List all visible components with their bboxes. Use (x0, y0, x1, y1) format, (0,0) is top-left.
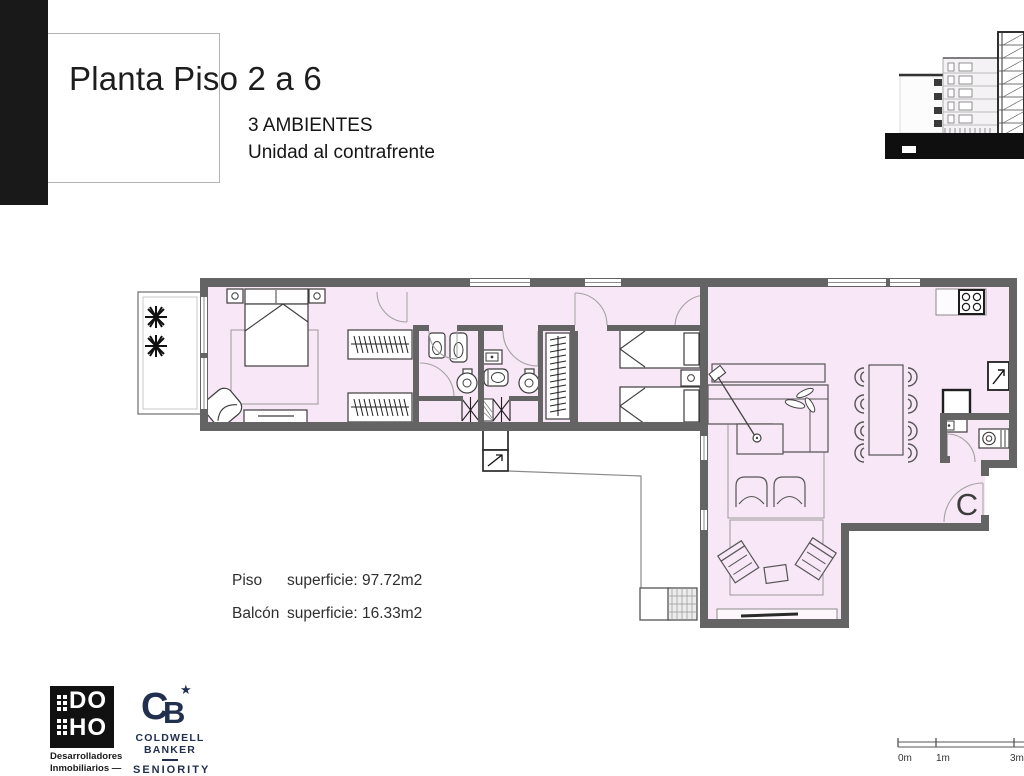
doho-logo: DO HO Desarrolladores Inmobiliarios — (50, 686, 122, 775)
washbasin-icon (457, 373, 477, 393)
doho-logo-mark: DO HO (50, 686, 114, 748)
scale-bar: 0m 1m 3m (893, 736, 1024, 768)
scale-0m: 0m (898, 753, 912, 764)
kitchen-shaft (943, 390, 970, 415)
electrical-panel (988, 362, 1009, 390)
balcon-value: superficie: 16.33m2 (287, 605, 422, 623)
doho-caption-1: Desarrolladores (50, 751, 122, 763)
stove-icon (959, 290, 984, 314)
washbasin-icon (519, 373, 539, 393)
side-table (764, 565, 788, 584)
cb-line-2: BANKER (133, 744, 207, 756)
star-icon: ★ (180, 682, 192, 698)
hall-closet (546, 333, 570, 419)
subtitle: 3 AMBIENTES Unidad al contrafrente (248, 112, 435, 166)
piso-value: superficie: 97.72m2 (287, 572, 422, 590)
floorplan-slide: { "header": { "title": "Planta Piso 2 a … (0, 0, 1024, 768)
cb-line-1: COLDWELL (133, 732, 207, 744)
subtitle-line-2: Unidad al contrafrente (248, 139, 435, 166)
building-section-elevation (880, 0, 1024, 168)
console-table (712, 364, 825, 382)
scale-3m: 3m (1010, 753, 1024, 764)
barrel-chair (774, 477, 805, 507)
doho-dots (57, 695, 67, 711)
doho-caption-2: Inmobiliarios — (50, 763, 122, 775)
dining-table (869, 365, 903, 455)
piso-row: Piso superficie: 97.72m2 (232, 572, 422, 590)
cb-divider (162, 759, 178, 761)
coldwell-banker-logo: C B ★ COLDWELL BANKER SENIORITY (133, 686, 207, 776)
unit-letter: C (956, 487, 978, 522)
exterior-service (483, 428, 697, 620)
title-outline-box (32, 33, 220, 183)
page-title: Planta Piso 2 a 6 (69, 60, 322, 98)
plant-icon (145, 335, 167, 357)
barrel-chair (736, 477, 767, 507)
piso-label: Piso (232, 572, 287, 590)
bedroom-balcony (138, 292, 202, 414)
nightstand (681, 370, 701, 386)
balcon-row: Balcón superficie: 16.33m2 (232, 605, 422, 623)
double-bed (245, 304, 308, 366)
plant-icon (145, 306, 167, 328)
cb-monogram: C B ★ (133, 686, 207, 732)
surface-measurements: Piso superficie: 97.72m2 Balcón superfic… (232, 572, 422, 638)
cb-line-3: SENIORITY (133, 764, 207, 776)
scale-1m: 1m (936, 753, 950, 764)
balcon-label: Balcón (232, 605, 287, 623)
subtitle-line-1: 3 AMBIENTES (248, 112, 435, 139)
corner-black-block (0, 0, 48, 205)
doho-dots (57, 719, 67, 735)
